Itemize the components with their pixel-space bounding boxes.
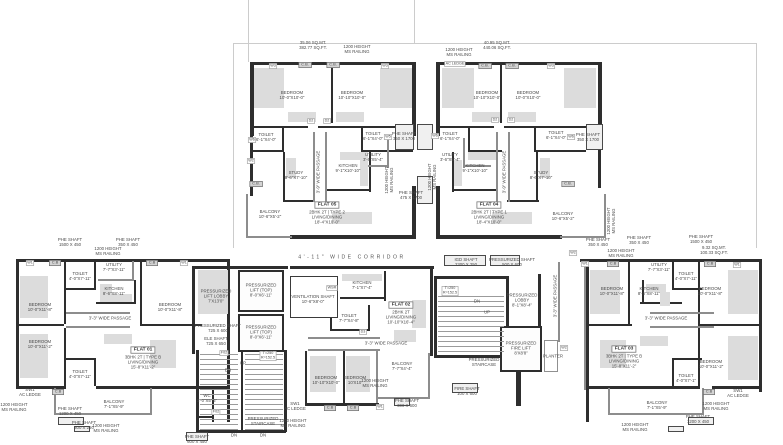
wall	[250, 126, 308, 128]
stair-up: UP	[240, 362, 246, 367]
wall	[140, 262, 142, 324]
flat-name: FLAT 03	[612, 345, 637, 352]
railing-wall	[496, 132, 498, 202]
wall	[196, 350, 199, 432]
wall	[507, 200, 539, 202]
furniture-block	[380, 68, 412, 108]
railing-wall	[387, 138, 389, 168]
area-note-flat05: 35.06 SQ.MT. 382.77 SQ.FT.	[299, 41, 327, 51]
furniture-block	[660, 292, 670, 306]
room-bedroom: BEDROOM 10'-0"X11'-2"	[28, 340, 53, 350]
passage-note: 3'-9" WIDE PASSAGE	[317, 151, 322, 194]
wall	[250, 136, 253, 196]
wall	[538, 274, 541, 330]
railing-wall	[376, 351, 378, 403]
wall	[290, 235, 414, 239]
wall	[436, 186, 440, 239]
wall	[516, 372, 521, 406]
furniture-block	[728, 270, 758, 314]
passage-note: 3'-3" WIDE PASSAGE	[554, 275, 559, 318]
wall	[196, 430, 286, 433]
window-tag: W1	[376, 404, 384, 410]
wall	[586, 259, 589, 422]
flat-name: FLAT 04	[477, 201, 502, 208]
wall	[94, 262, 96, 288]
staircase: PRESSURIZED STAIRCASE	[248, 417, 279, 427]
wall	[588, 324, 632, 326]
railing-wall	[150, 388, 152, 415]
room-toilet: TOILET 6'-1"X4'-0"	[256, 133, 276, 143]
railing-note: 1200 HEIGHT MS RAILING	[385, 166, 395, 193]
railing-wall	[246, 236, 292, 238]
shaft-note: PHE SHAFT 1200 X 450	[58, 407, 82, 417]
room-bedroom: BEDROOM 10'-0"X11'-2"	[699, 360, 724, 370]
wall	[436, 126, 494, 128]
window-tag: W6	[567, 134, 575, 140]
room-bedroom: BEDROOM 10'-0"X11'-8"	[698, 287, 723, 297]
wall	[436, 62, 440, 136]
railing-wall	[98, 279, 134, 281]
wall	[468, 126, 470, 152]
railing-note: 1200 HEIGHT MS RAILING	[361, 379, 388, 389]
furniture-block	[394, 330, 416, 342]
boundary-line	[756, 43, 757, 248]
railing-note: 1200 HEIGHT MS RAILING	[607, 207, 617, 234]
door-tag: F02	[220, 350, 229, 356]
cupboard: C.B	[146, 260, 158, 266]
railing-note: 1200 HEIGHT MS RAILING	[94, 247, 121, 257]
window-tag: W6	[431, 133, 439, 139]
wall	[672, 262, 674, 288]
room-toilet: TOILET 4'-0"X7'-11"	[675, 272, 697, 282]
window-tag: W3	[381, 63, 389, 69]
window-tag: W5	[384, 134, 392, 140]
railing-wall	[604, 194, 606, 238]
railing-wall	[66, 326, 130, 328]
railing-note: 1200 HEIGHT MS RAILING	[279, 419, 306, 429]
furniture-block	[360, 160, 368, 186]
lift: PRESSURIZED FIRE LIFT 8'X8'8"	[506, 342, 537, 357]
cupboard: C.B	[704, 261, 716, 267]
window-tag: W2	[247, 158, 255, 164]
ac-ledge: SW1 AC LEDGE	[727, 389, 749, 399]
room-bedroom: BEDROOM 10'-0"X11'-8"	[28, 303, 53, 313]
area-note: 9.32 SQ.MT. 100.33 SQ.FT.	[700, 246, 728, 256]
cupboard: C.B	[703, 389, 715, 395]
room-toilet: TOILET 6'-1"X4'-0"	[363, 132, 383, 142]
room-bedroom: BEDROOM 10'-10"X10'-0"	[312, 376, 339, 386]
railing-note: 1200 HEIGHT MS RAILING	[428, 163, 438, 190]
room-balcony: BALCONY 10'-6"X5'-2"	[552, 212, 574, 222]
tread-note: T=250 R=152.5	[442, 286, 459, 296]
door-tag: D2	[507, 117, 514, 123]
furniture-block	[640, 336, 668, 346]
wall	[434, 276, 437, 358]
cupboard: C.B	[49, 260, 61, 266]
furniture-block	[468, 152, 496, 160]
shaft-note: PHE SHAFT 600 X 450	[185, 435, 209, 445]
wall	[290, 266, 434, 269]
wall	[368, 305, 370, 331]
shaft-note: VENTILATION SHAFT 10'-6"X8'-0"	[291, 295, 334, 305]
room-balcony: BALCONY 7'-1"X5'-9"	[647, 401, 668, 411]
railing-wall	[508, 132, 510, 202]
passage-note: 3'-3" WIDE PASSAGE	[365, 342, 408, 347]
furniture-block	[336, 112, 364, 122]
window-tag: W1	[180, 260, 188, 266]
room-kitchen: KITCHEN 9'-1"X10'-10"	[463, 164, 488, 174]
wall	[434, 276, 509, 279]
stair-treads	[200, 354, 238, 430]
room-bedroom: BEDROOM 10'-10"X10'-0"	[338, 91, 365, 101]
ac-ledge: AC LEDGE	[444, 61, 465, 67]
boundary-line	[248, 0, 249, 62]
railing-note: 1200 HEIGHT MS RAILING	[343, 45, 370, 55]
lift: PRESSURIZED LIFT (TOP) 8'-0"X6'-11"	[246, 284, 277, 299]
ac-ledge: SW1 AC LEDGE	[284, 402, 306, 412]
window-tag: WSR	[326, 285, 337, 291]
passage-note: 3'-9" WIDE PASSAGE	[503, 151, 508, 194]
stair-up: UP	[484, 311, 490, 316]
room-kitchen: KITCHEN 9'-1"X10'-10"	[336, 164, 361, 174]
flat-info: 2BHK 2T | TYPE 2 LIVING/DINING 18'-4"X10…	[309, 211, 345, 226]
corridor-label: 4'-11" WIDE CORRIDOR	[298, 255, 406, 261]
wall	[192, 266, 288, 269]
wall	[96, 302, 136, 304]
shaft-note: PRESSURIZED SHAFT 500 X 600	[489, 258, 535, 268]
stair-dn: DN	[225, 369, 231, 374]
railing-wall	[608, 388, 610, 415]
flat-name: FLAT 02	[389, 301, 414, 308]
railing-note: 1200 HEIGHT MS RAILING	[621, 423, 648, 433]
wall	[250, 150, 283, 152]
wall	[331, 65, 333, 123]
tread-note: T=250 R=152.5	[260, 351, 277, 361]
window-tag: W2	[560, 345, 568, 351]
wall	[66, 288, 96, 290]
shaft-note: PHE SHAFT 350 X 1700	[576, 133, 600, 143]
ac-ledge: SW1 AC LEDGE	[19, 388, 41, 398]
furniture-block	[564, 68, 596, 108]
wall	[438, 235, 562, 239]
railing-wall	[650, 312, 714, 314]
wall	[452, 189, 496, 191]
room-study: STUDY 8'-6"X7'-10"	[530, 171, 552, 181]
railing-wall	[308, 337, 380, 339]
wall	[283, 200, 315, 202]
railing-wall	[584, 262, 586, 390]
furniture-block	[454, 160, 462, 186]
stair-dn: DN	[474, 300, 480, 305]
room-kitchen: KITCHEN 8'-6"X8'-11"	[103, 287, 125, 297]
wall	[18, 324, 64, 326]
staircase: PRESSURIZED STAIRCASE	[469, 358, 500, 368]
railing-wall	[246, 194, 248, 238]
wall	[305, 351, 307, 405]
cupboard: C.B.	[250, 181, 263, 187]
room-kitchen: KITCHEN 7'-1"X7'-4"	[352, 281, 372, 291]
door-tag: D2	[323, 118, 330, 124]
room-utility: UTILITY 7'-7"X3'-11"	[648, 263, 670, 273]
shaft-note: PHE SHAFT 1200 X 450	[686, 415, 710, 425]
wall	[534, 150, 586, 152]
railing-wall	[428, 353, 430, 399]
furniture-block	[310, 356, 336, 392]
railing-wall	[325, 132, 327, 202]
shaft-note: IGD SHAFT 2300 X 250	[454, 258, 477, 268]
room-toilet: TOILET 4'-0"X7'-11"	[69, 370, 91, 380]
cupboard: C.B	[52, 389, 64, 395]
room-utility: UTILITY 3'-6"X5'-4"	[363, 153, 383, 163]
room-bedroom: BEDROOM 10'-10"X10'-0"	[473, 91, 500, 101]
boundary-line	[233, 43, 234, 248]
shaft-note: PRESSURIZED SHAFT 725 X 600	[195, 324, 241, 334]
wall	[134, 280, 136, 304]
shaft-note: PHE SHAFT 300 X 600	[395, 399, 419, 409]
wall	[66, 358, 94, 360]
room-bedroom: BEDROOM 10'-0"X11'-8"	[158, 303, 183, 313]
lift-lobby: PRESSURIZED LOBBY 8'-1"X8'-4"	[507, 294, 538, 309]
furniture-block	[442, 68, 474, 108]
railing-note: 1200 HEIGHT MS RAILING	[702, 402, 729, 412]
shaft-note: PHE SHAFT 350 X 450	[586, 238, 610, 248]
room-balcony: BALCONY 7'-1"X5'-9"	[104, 400, 125, 410]
furniture-block	[104, 334, 132, 344]
boundary-line	[414, 0, 415, 44]
door-tag: D2	[491, 117, 498, 123]
railing-note: 1200 HEIGHT MS RAILING	[0, 403, 27, 413]
window-tag: W2	[569, 250, 577, 256]
room-wc: WC 3'-0"X5'-6"	[197, 394, 217, 404]
door-tag: F02	[212, 409, 221, 415]
cupboard: C.B.	[562, 181, 575, 187]
room-toilet: TOILET 6'-1"X4'-0"	[546, 131, 566, 141]
door-tag: D2	[307, 118, 314, 124]
shaft-note: ELE SHAFT 725 X 650	[204, 337, 228, 347]
furniture-block	[342, 274, 382, 281]
railing-wall	[313, 132, 315, 202]
room-balcony: BALCONY 10'-6"X5'-2"	[259, 210, 281, 220]
shaft-note: PHE SHAFT 1500 X 450	[689, 235, 713, 245]
room-bedroom: BEDROOM 10'-0"X11'-8"	[600, 287, 625, 297]
shaft-note: PHE SHAFT 350 X 1700	[392, 132, 416, 142]
door-tag: D3	[359, 329, 366, 335]
wall	[192, 266, 195, 354]
wall	[327, 189, 371, 191]
shaft-note: PHE SHAFT 1500 X 450	[58, 238, 82, 248]
cupboard: C.B.	[299, 62, 312, 68]
wall	[628, 262, 630, 324]
cupboard: C.B.	[506, 63, 519, 69]
railing-wall	[66, 312, 130, 314]
stair-dn: DN	[231, 434, 237, 439]
wall	[534, 126, 536, 152]
furniture-block	[728, 336, 758, 380]
flat-info: 2BHK 2T LIVING/DINING 10'-10"X16'-4"	[386, 311, 416, 326]
wall	[588, 386, 700, 389]
lift: PRESSURIZED LIFT (TOP) 8'-0"X6'-11"	[246, 326, 277, 341]
wall	[672, 358, 674, 386]
railing-note: 1200 HEIGHT MS RAILING	[445, 48, 472, 58]
wall	[430, 266, 433, 356]
window-tag: W6	[248, 137, 256, 143]
room-bedroom: BEDROOM 10'-0"X10'-0"	[516, 91, 541, 101]
railing-note: 1200 HEIGHT MS RAILING	[607, 249, 634, 259]
cupboard: C.B.	[479, 63, 492, 69]
wall	[282, 126, 284, 152]
shaft-note: FIRE SHAFT 100 X 600	[454, 387, 479, 397]
flat-info: 2BHK 2T | TYPE 1 LIVING/DINING 18'-4"X10…	[471, 211, 507, 226]
cupboard: C.B.	[327, 62, 340, 68]
area-note-flat04: 40.95 SQ.MT. 440.06 SQ.FT.	[483, 41, 511, 51]
planter: PLANTER	[543, 355, 563, 360]
room-utility: UTILITY 3'-6"X5'-4"	[440, 153, 460, 163]
railing-wall	[132, 261, 134, 280]
window-tag: W3	[269, 63, 277, 69]
room-kitchen: KITCHEN 8'-6"X8'-11"	[638, 287, 660, 297]
cupboard: C.B	[324, 405, 336, 411]
railing-note: 1200 HEIGHT MS RAILING	[92, 424, 119, 434]
wall	[305, 403, 379, 406]
room-study: STUDY 8'-6"X7'-10"	[285, 171, 307, 181]
railing-wall	[308, 349, 380, 351]
stair-treads	[438, 296, 504, 352]
shaft-box	[668, 426, 684, 432]
room-utility: UTILITY 7'-7"X3'-11"	[103, 263, 125, 273]
wall	[340, 297, 386, 299]
cupboard: C.B	[607, 261, 619, 267]
flat-name: FLAT 05	[315, 201, 340, 208]
furniture-block	[254, 68, 284, 108]
room-toilet: TOILET 4'-0"X7'-1"	[676, 374, 696, 384]
room-toilet: TOILET 7'-7"X4'-8"	[339, 314, 359, 324]
room-balcony: BALCONY 7'-7"X4'-4"	[392, 362, 413, 372]
shaft-note: PHE SHAFT 475 X 1700	[399, 191, 423, 201]
flat-name: FLAT 01	[131, 346, 156, 353]
room-toilet: TOILET 4'-0"X7'-11"	[69, 272, 91, 282]
shaft-note: PHE SHAFT 350 X 450	[627, 236, 651, 246]
window-tag: W3	[547, 63, 555, 69]
room-bedroom: BEDROOM 10'-0"X10'-0"	[280, 91, 305, 101]
window-tag: W1	[733, 262, 741, 268]
floor-plan-canvas: 35.06 SQ.MT. 382.77 SQ.FT.1200 HEIGHT MS…	[0, 0, 783, 445]
railing-wall	[650, 326, 714, 328]
passage-note: 3'-3" WIDE PASSAGE	[89, 317, 132, 322]
stair-dn: DN	[260, 434, 266, 439]
window-tag: W1	[26, 260, 34, 266]
window-tag: W1	[581, 261, 589, 267]
flat-info: 3BHK 2T | TYPE B LIVING/DINING 15'-8"X11…	[125, 356, 161, 371]
wall	[64, 262, 66, 324]
cupboard: C.B	[347, 405, 359, 411]
room-toilet: TOILET 6'-1"X4'-0"	[440, 132, 460, 142]
wall	[94, 358, 96, 386]
lift-lobby: PRESSURIZED LIFT LOBBY 7'X13'0"	[201, 290, 232, 305]
flat-info: 3BHK 2T | TYPE B LIVING/DINING 15'-8"X11…	[606, 355, 642, 370]
passage-note: 3'-3" WIDE PASSAGE	[645, 317, 688, 322]
